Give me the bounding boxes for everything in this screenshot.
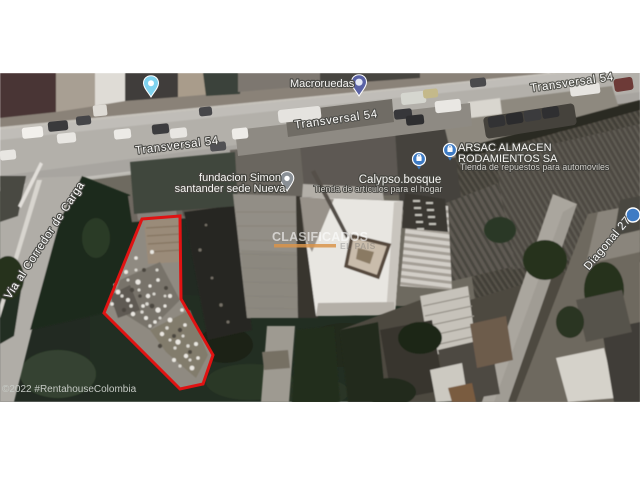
svg-text:Tienda de artículos para el ho: Tienda de artículos para el hogar xyxy=(314,184,443,194)
svg-text:©2022 #RentahouseColombia: ©2022 #RentahouseColombia xyxy=(2,384,137,395)
svg-text:EL PAIS: EL PAIS xyxy=(340,241,376,251)
svg-text:Macroruedas: Macroruedas xyxy=(290,78,355,90)
svg-text:santander sede Nueva: santander sede Nueva xyxy=(175,183,287,195)
svg-text:Tienda de repuestos para autom: Tienda de repuestos para automoviles xyxy=(460,162,610,172)
